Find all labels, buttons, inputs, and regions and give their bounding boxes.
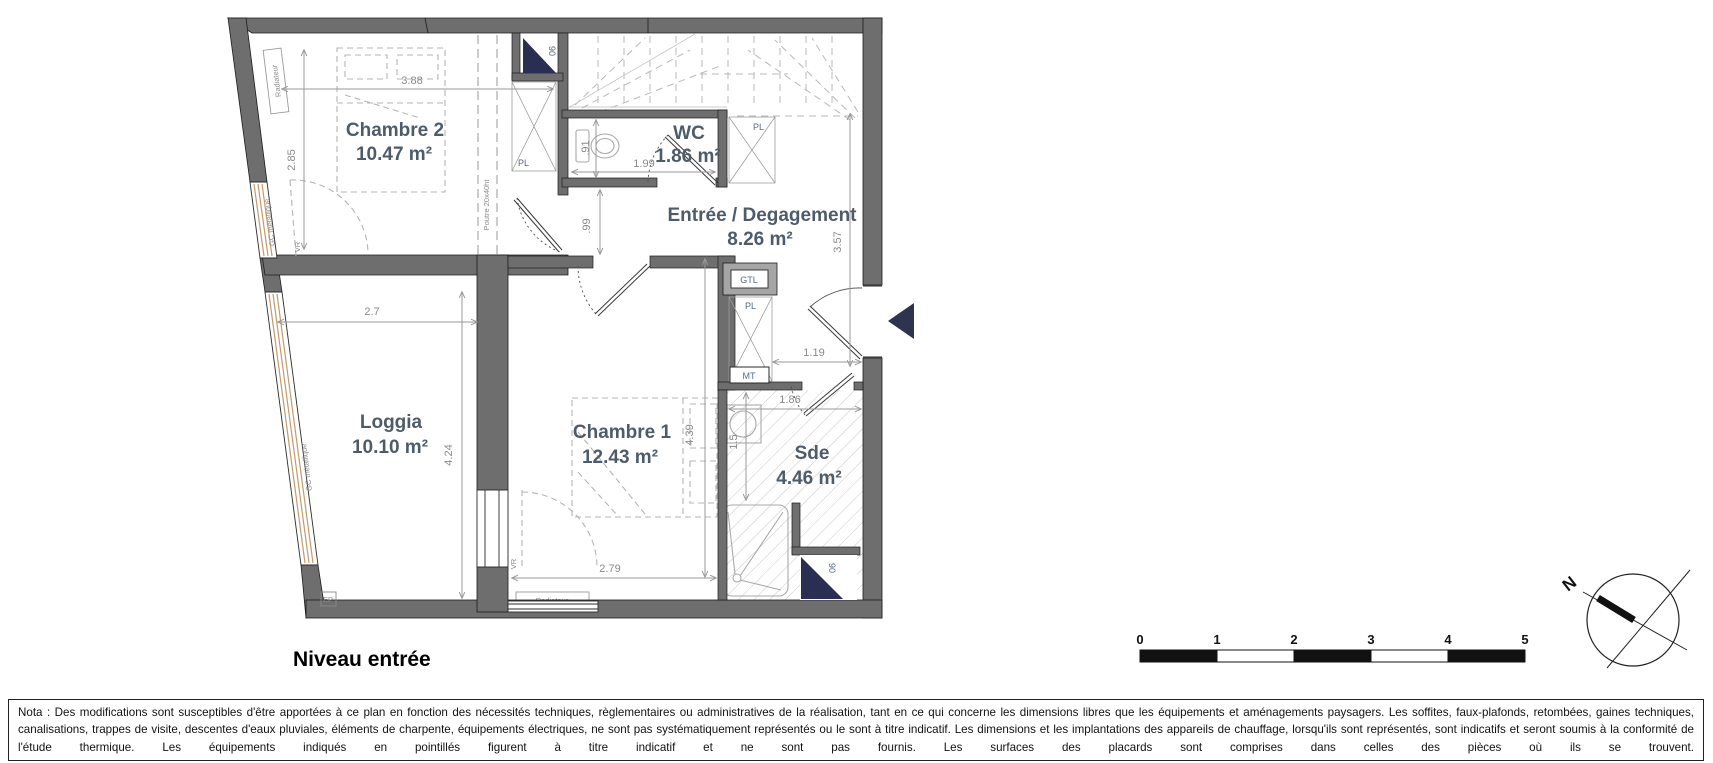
wall-sde-alcove-top (792, 547, 860, 555)
dim-hall-width: .99 (581, 218, 593, 233)
windows (250, 182, 598, 612)
tremie-width-label: 90 (827, 563, 837, 573)
mt-box: MT (730, 367, 769, 383)
room-area-entree: 8.26 m² (727, 229, 792, 250)
room-area-chambre2: 10.47 m² (356, 144, 432, 165)
closet-pl-chambre2: PL (512, 82, 556, 171)
dim-loggia-width: 2.7 (364, 306, 379, 318)
floor-plan-drawing: Radiateur Radiateur Poutre 20x40ht (0, 0, 1713, 763)
dim-entree-height: 3.57 (832, 231, 844, 252)
room-area-sde: 4.46 m² (776, 468, 841, 489)
scale-tick: 1 (1213, 632, 1220, 647)
fixtures: Radiateur Radiateur (263, 48, 788, 609)
tremie-width-label: 90 (547, 46, 557, 56)
dim-sde-height: 1.5 (728, 434, 740, 449)
wall-wc-bottom (562, 178, 657, 187)
scale-tick: 5 (1521, 632, 1528, 647)
beam-label: Poutre 20x40ht (482, 179, 491, 231)
scale-tick: 0 (1136, 632, 1143, 647)
room-name-chambre1: Chambre 1 (573, 422, 672, 443)
ceiling-beam: Poutre 20x40ht (478, 35, 497, 255)
entrance-arrow (888, 303, 914, 339)
window-loggia (265, 292, 318, 565)
tremie-bottom: 90 (800, 555, 857, 600)
gtl-box: GTL (723, 263, 777, 295)
wall-wc-top (562, 110, 727, 118)
closet-pl-wc: PL (729, 117, 775, 183)
dim-loggia-height: 4.24 (443, 444, 455, 465)
scale-tick: 2 (1290, 632, 1297, 647)
vr-label: VR (509, 558, 518, 569)
wall-loggia-right-upper (477, 255, 508, 490)
wall-right-lower (863, 358, 882, 618)
chambre1-door (578, 264, 650, 316)
dim-sde-width: 1.86 (779, 394, 800, 406)
chambre1-window-swing (522, 490, 597, 567)
tremie-top: 90 (523, 38, 557, 73)
nota-disclaimer: Nota : Des modifications sont susceptibl… (8, 699, 1704, 761)
closet-label: PL (745, 301, 756, 311)
wall-top (228, 18, 882, 33)
mt-label: MT (743, 371, 756, 381)
window-bottom (508, 601, 598, 612)
wall-sde-niche (792, 503, 800, 553)
radiator-top-left: Radiateur (263, 48, 289, 114)
dim-chambre2-height: 2.85 (286, 149, 298, 170)
room-name-wc: WC (673, 123, 705, 144)
room-area-chambre1: 12.43 m² (582, 447, 658, 468)
wall-loggia-right-lower (477, 567, 508, 612)
scale-bar: 0 1 2 3 4 5 (1136, 632, 1528, 662)
ep-label: EP (323, 595, 333, 604)
dim-wc-height: .91 (580, 140, 592, 155)
chambre2-door (514, 198, 562, 252)
dim-entree-width: 1.19 (803, 347, 824, 359)
scale-tick: 3 (1367, 632, 1374, 647)
dim-chambre2-width: 3.88 (401, 75, 422, 87)
room-name-loggia: Loggia (360, 412, 423, 433)
north-needle (1598, 598, 1634, 620)
wall-right-upper (863, 18, 882, 285)
gtl-label: GTL (740, 275, 758, 285)
closet-label: PL (753, 122, 764, 132)
plan-title: Niveau entrée (293, 648, 431, 672)
room-area-wc: 1.86 m² (655, 146, 720, 167)
wall-chambre1-top-left (508, 256, 593, 268)
dim-wc-width: 1.99 (633, 158, 654, 170)
vr-label: VR (293, 241, 302, 252)
room-name-chambre2: Chambre 2 (346, 120, 444, 141)
dim-chambre1-height: 4.39 (684, 424, 696, 445)
room-name-sde: Sde (795, 443, 830, 464)
wall-alcove-bottom (512, 73, 563, 81)
scale-tick: 4 (1444, 632, 1452, 647)
wall-left-upper (228, 18, 267, 182)
room-name-entree: Entrée / Degagement (668, 205, 858, 226)
room-area-loggia: 10.10 m² (352, 437, 428, 458)
compass: N (1559, 570, 1690, 668)
wall-sde-top-stub (854, 382, 863, 390)
closet-label: PL (518, 158, 529, 168)
wall-sde-left (718, 390, 727, 600)
dim-chambre1-width: 2.79 (599, 563, 620, 575)
floor-plan-sheet: Radiateur Radiateur Poutre 20x40ht (0, 0, 1713, 763)
north-label: N (1559, 573, 1580, 596)
window-chambre1 (477, 490, 508, 567)
